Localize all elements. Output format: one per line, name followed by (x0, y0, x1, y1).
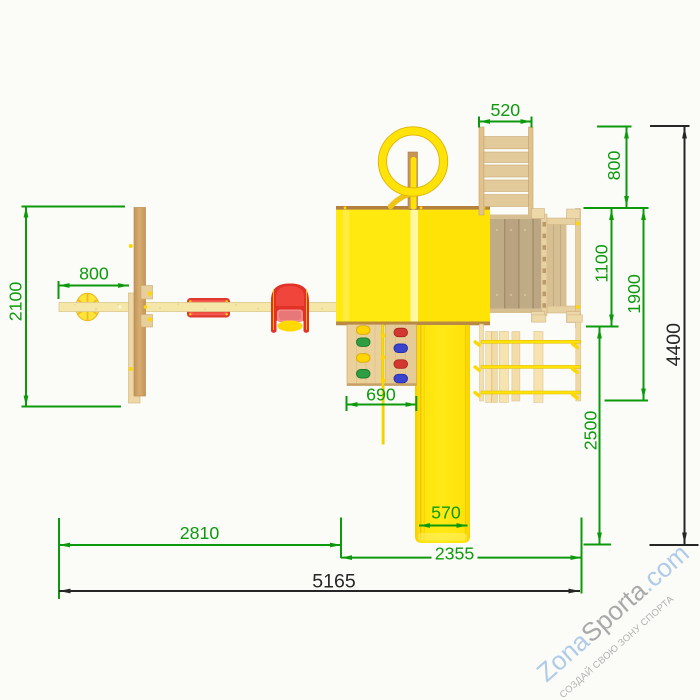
svg-text:5165: 5165 (312, 571, 356, 593)
svg-text:4400: 4400 (663, 323, 685, 367)
svg-text:2810: 2810 (180, 523, 220, 543)
svg-text:570: 570 (431, 503, 461, 523)
svg-text:2355: 2355 (435, 544, 475, 564)
svg-text:800: 800 (604, 151, 624, 181)
svg-text:2100: 2100 (6, 282, 26, 322)
svg-text:1900: 1900 (624, 274, 644, 314)
svg-text:2500: 2500 (580, 411, 600, 451)
svg-text:690: 690 (366, 385, 396, 405)
svg-text:800: 800 (79, 264, 109, 284)
svg-text:1100: 1100 (592, 244, 612, 282)
svg-text:520: 520 (490, 100, 520, 120)
